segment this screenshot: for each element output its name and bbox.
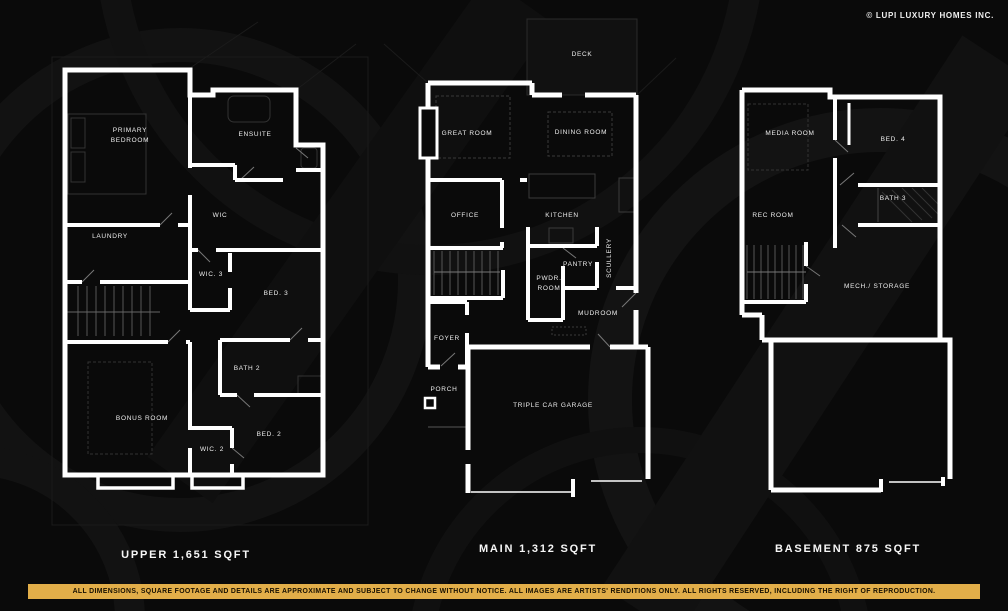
- basement-furniture: [748, 104, 938, 222]
- disclaimer-banner: ALL DIMENSIONS, SQUARE FOOTAGE AND DETAI…: [28, 584, 980, 599]
- floor-plan-upper: PRIMARY BEDROOMENSUITEWICLAUNDRYWIC. 3BE…: [50, 53, 350, 508]
- main-plan-walls: [418, 15, 663, 510]
- floorplan-sheet: PRIMARY BEDROOMENSUITEWICLAUNDRYWIC. 3BE…: [0, 0, 1008, 611]
- main-stairs: [434, 251, 500, 295]
- floor-plan-main: DECKGREAT ROOMDINING ROOMOFFICEKITCHENPA…: [418, 15, 663, 510]
- garage-doors: [471, 481, 642, 492]
- copyright-text: © LUPI LUXURY HOMES INC.: [866, 11, 994, 20]
- porch-post: [425, 398, 435, 408]
- basement-plan-walls: [730, 82, 965, 507]
- caption-upper: UPPER 1,651 SQFT: [121, 549, 251, 561]
- upper-stairs: [65, 286, 160, 336]
- basement-stairs: [747, 245, 806, 299]
- upper-furniture: [68, 96, 322, 454]
- fireplace: [420, 108, 437, 158]
- caption-basement: BASEMENT 875 SQFT: [775, 543, 921, 555]
- deck-area: [527, 19, 637, 95]
- basement-door-swings: [806, 140, 856, 276]
- floor-plan-basement: MEDIA ROOMBED. 4REC ROOMBATH 3MECH./ STO…: [730, 82, 965, 507]
- upper-plan-walls: [50, 53, 350, 508]
- caption-main: MAIN 1,312 SQFT: [479, 543, 597, 555]
